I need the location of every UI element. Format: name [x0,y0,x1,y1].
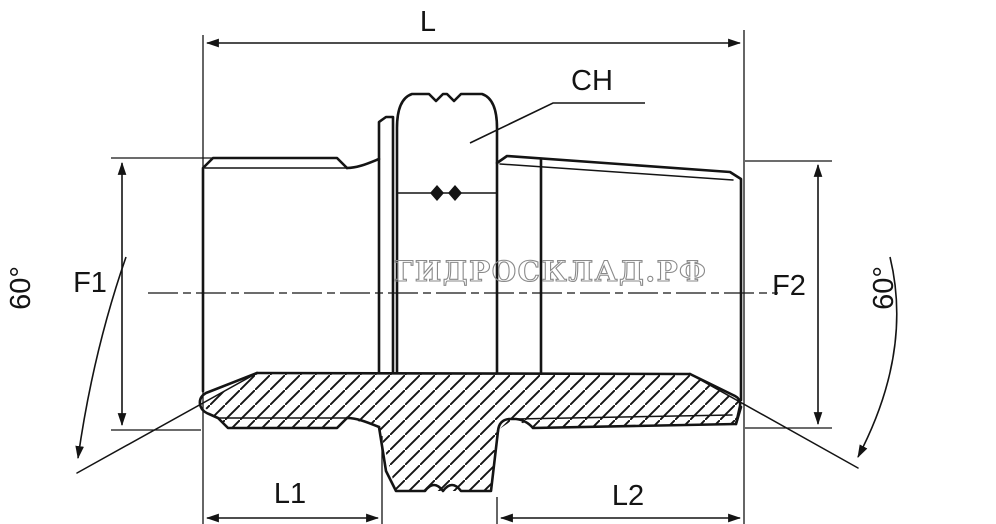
technical-drawing-canvas: L CH F1 F2 L1 L2 60° 60° ГИДРОСКЛАД.РФ [0,0,996,524]
angle-label-right: 60° [868,266,900,310]
watermark-text: ГИДРОСКЛАД.РФ [394,255,707,288]
hex-body [397,94,497,373]
left-thread [203,158,379,293]
dim-label-L2: L2 [612,480,644,512]
dim-label-L1: L1 [274,478,306,510]
collar [379,117,393,373]
dim-label-CH: CH [571,65,613,97]
fitting-drawing: L CH F1 F2 L1 L2 60° 60° ГИДРОСКЛАД.РФ [0,0,996,524]
dim-label-F1: F1 [73,267,107,299]
hex-corner-mark [430,185,444,201]
hex-corner-mark [448,185,462,201]
dim-label-F2: F2 [772,270,806,302]
angle-label-left: 60° [5,266,37,310]
dim-label-L: L [420,6,436,38]
cross-section-hatch [201,373,740,491]
